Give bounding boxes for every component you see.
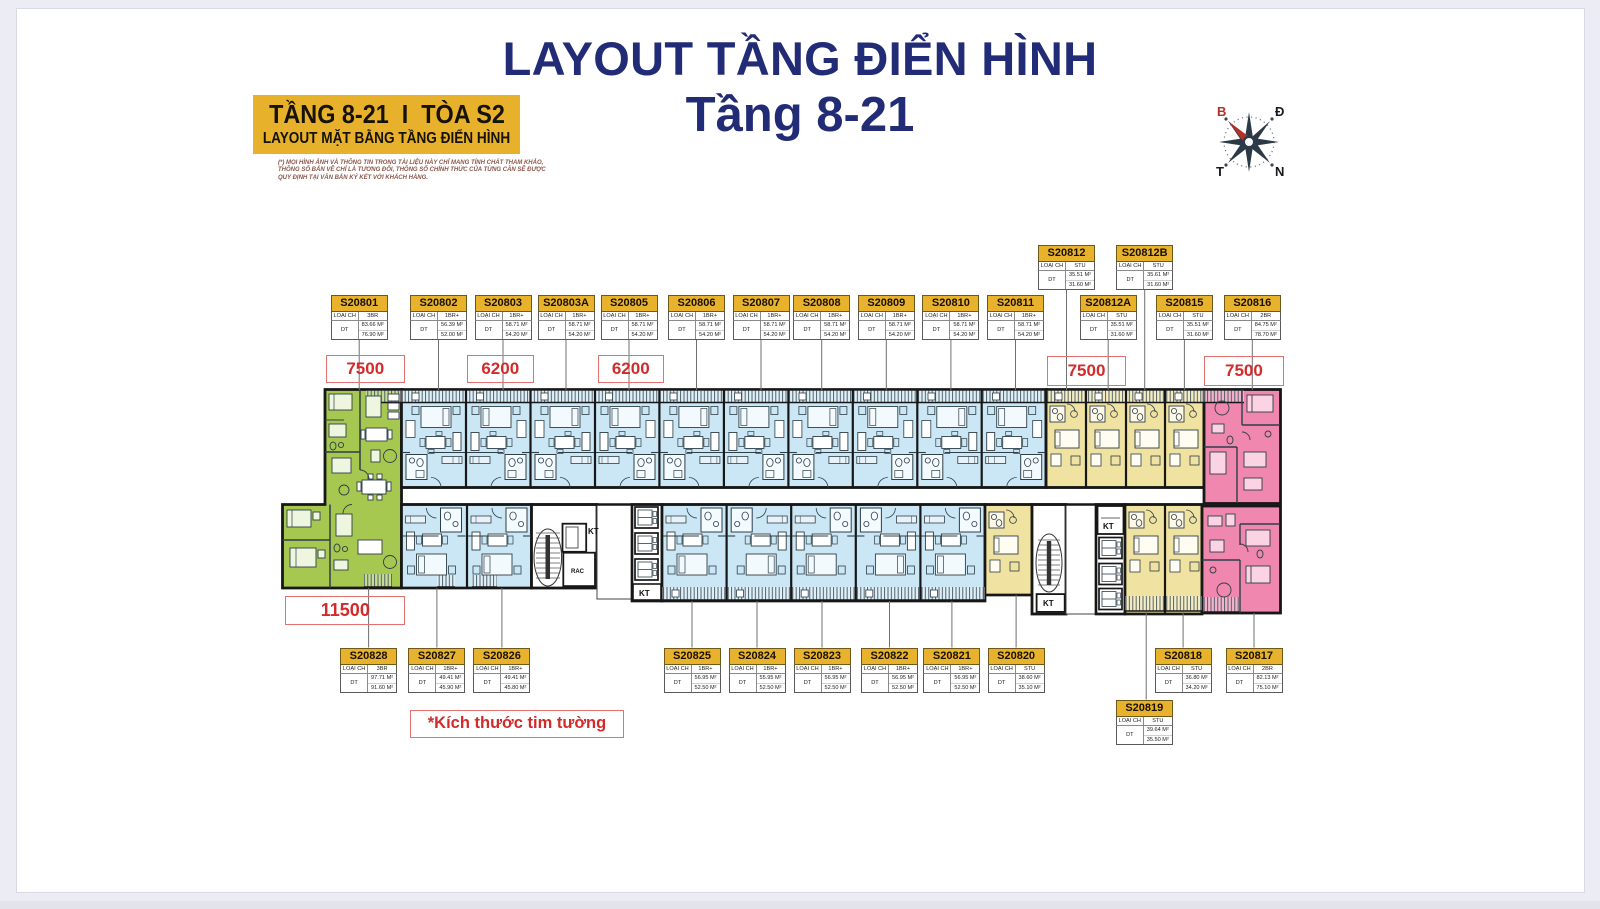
svg-text:KT: KT bbox=[1103, 522, 1114, 531]
svg-text:KT: KT bbox=[588, 527, 599, 536]
svg-text:RAC: RAC bbox=[571, 569, 585, 575]
svg-text:KT: KT bbox=[1043, 599, 1054, 608]
svg-text:KT: KT bbox=[639, 589, 650, 598]
